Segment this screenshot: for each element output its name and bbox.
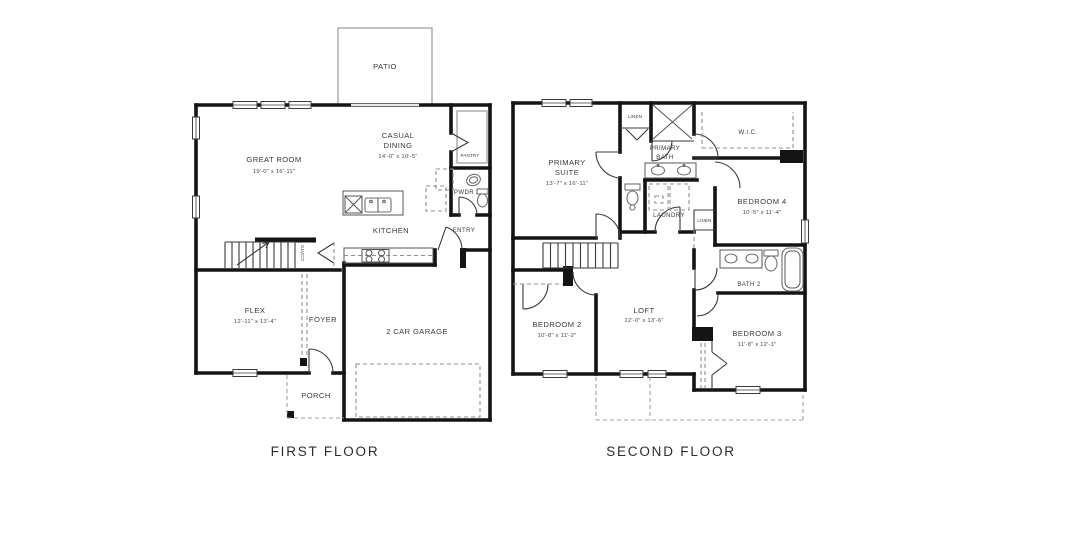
laundry-appliances bbox=[649, 184, 689, 210]
label-primary-suite-2: SUITE bbox=[555, 168, 579, 177]
label-casual-dining-dims: 14'-0" x 10'-5" bbox=[378, 154, 417, 160]
bedroom3-closet bbox=[701, 341, 712, 390]
label-bath2: BATH 2 bbox=[737, 281, 760, 288]
label-bedroom3-dims: 11'-8" x 12'-1" bbox=[738, 342, 777, 348]
flex-opening bbox=[302, 274, 307, 356]
floor-plan-image: PATIO GREAT ROOM 19'-0" x 16'-11" CASUAL… bbox=[0, 0, 1087, 556]
patio-slider-door bbox=[351, 102, 419, 108]
label-primary-suite-dims: 13'-7" x 16'-11" bbox=[546, 181, 588, 187]
garage-door-dashed bbox=[356, 364, 480, 417]
label-linen-top: LINEN bbox=[628, 114, 642, 119]
label-bedroom3: BEDROOM 3 bbox=[732, 329, 781, 338]
first-floor-stairs bbox=[225, 242, 296, 268]
label-flex: FLEX bbox=[245, 306, 266, 315]
label-laundry: LAUNDRY bbox=[653, 212, 685, 219]
label-casual-dining-2: DINING bbox=[384, 141, 413, 150]
label-bedroom2-dims: 10'-8" x 11'-2" bbox=[538, 333, 577, 339]
bath2-fixtures bbox=[720, 248, 803, 291]
label-casual-dining-1: CASUAL bbox=[382, 131, 415, 140]
front-door bbox=[309, 349, 333, 373]
label-linen-mid: LINEN bbox=[697, 218, 711, 223]
title-second-floor: SECOND FLOOR bbox=[606, 444, 736, 459]
second-floor-stairs bbox=[543, 243, 618, 268]
coats-closet bbox=[318, 242, 334, 266]
kitchen-island bbox=[343, 191, 403, 215]
kitchen-counter bbox=[344, 248, 433, 263]
label-flex-dims: 12'-11" x 13'-4" bbox=[234, 319, 276, 325]
label-primary-bath-1: PRIMARY bbox=[650, 145, 680, 152]
label-patio: PATIO bbox=[373, 62, 397, 71]
first-floor-plan: PATIO GREAT ROOM 19'-0" x 16'-11" CASUAL… bbox=[193, 28, 491, 459]
second-floor-plan: PRIMARY SUITE 13'-7" x 16'-11" LINEN PRI… bbox=[513, 100, 809, 460]
label-pantry: PANTRY bbox=[460, 153, 479, 158]
label-loft-dims: 12'-0" x 13'-6" bbox=[624, 318, 663, 324]
label-great-room: GREAT ROOM bbox=[246, 155, 301, 164]
label-great-room-dims: 19'-0" x 16'-11" bbox=[253, 169, 295, 175]
kitchen-cabinets-dashed bbox=[426, 169, 453, 211]
label-primary-bath-2: BATH bbox=[656, 154, 673, 161]
label-pwdr: PWDR bbox=[454, 189, 474, 196]
label-kitchen: KITCHEN bbox=[373, 226, 409, 235]
label-bedroom4-dims: 10'-5" x 11'-4" bbox=[743, 210, 782, 216]
label-bedroom2: BEDROOM 2 bbox=[532, 320, 581, 329]
title-first-floor: FIRST FLOOR bbox=[271, 444, 380, 459]
floorplan-graphic: PATIO GREAT ROOM 19'-0" x 16'-11" CASUAL… bbox=[0, 0, 1087, 556]
label-coats: COATS bbox=[300, 245, 305, 261]
label-wic: W.I.C. bbox=[739, 129, 758, 136]
label-loft: LOFT bbox=[633, 306, 654, 315]
label-garage: 2 CAR GARAGE bbox=[386, 327, 448, 336]
label-primary-suite-1: PRIMARY bbox=[548, 158, 585, 167]
label-porch: PORCH bbox=[301, 391, 330, 400]
label-bedroom4: BEDROOM 4 bbox=[737, 197, 786, 206]
footprint-dashed bbox=[596, 377, 803, 420]
label-entry: ENTRY bbox=[453, 227, 476, 234]
label-foyer: FOYER bbox=[309, 315, 337, 324]
